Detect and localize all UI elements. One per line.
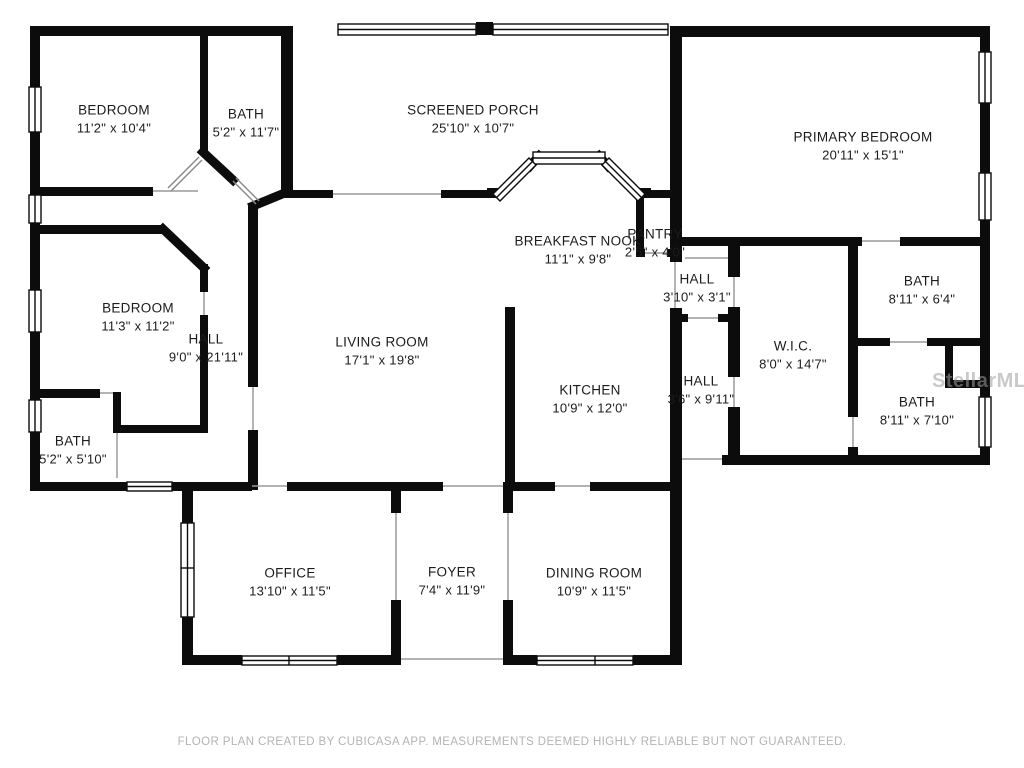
walls-layer	[30, 22, 990, 665]
footer-disclaimer: FLOOR PLAN CREATED BY CUBICASA APP. MEAS…	[0, 736, 1024, 748]
diagonal-walls	[163, 152, 608, 268]
floor-plan-drawing	[0, 0, 1024, 768]
watermark: StellarMLS	[932, 370, 1024, 393]
floor-plan-canvas: BEDROOM11'2" x 10'4"BATH5'2" x 11'7"SCRE…	[0, 0, 1024, 768]
